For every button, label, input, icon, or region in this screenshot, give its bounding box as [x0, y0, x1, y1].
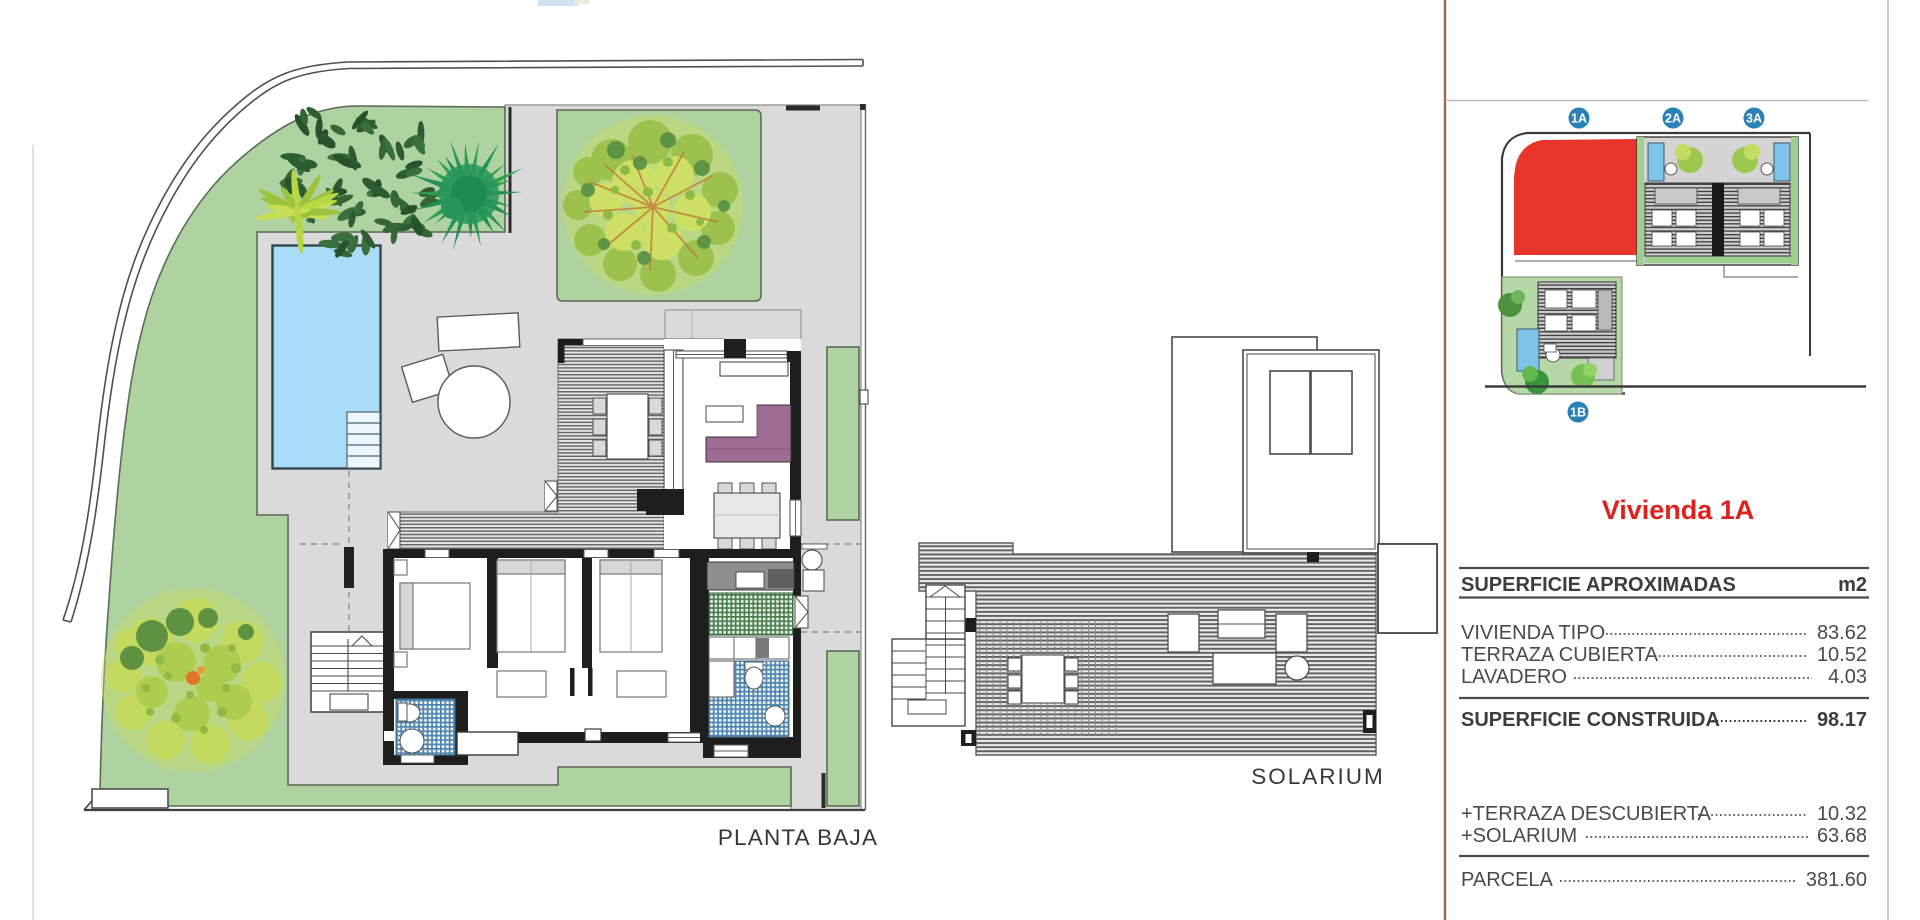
svg-text:LAVADERO: LAVADERO	[1461, 666, 1567, 688]
svg-text:SOLARIUM: SOLARIUM	[1251, 764, 1385, 789]
svg-text:1A: 1A	[1571, 112, 1587, 126]
svg-text:PARCELA: PARCELA	[1461, 869, 1554, 891]
svg-text:98.17: 98.17	[1817, 709, 1867, 731]
svg-text:2A: 2A	[1665, 112, 1681, 126]
svg-text:SUPERFICIE APROXIMADAS: SUPERFICIE APROXIMADAS	[1461, 574, 1736, 596]
svg-text:SUPERFICIE CONSTRUIDA: SUPERFICIE CONSTRUIDA	[1461, 709, 1720, 731]
svg-text:10.52: 10.52	[1817, 644, 1867, 666]
svg-text:1B: 1B	[1570, 406, 1586, 420]
svg-text:Vivienda 1A: Vivienda 1A	[1602, 495, 1755, 525]
svg-text:m2: m2	[1838, 574, 1867, 596]
svg-text:VIVIENDA TIPO: VIVIENDA TIPO	[1461, 622, 1605, 644]
svg-text:63.68: 63.68	[1817, 825, 1867, 847]
svg-text:+TERRAZA DESCUBIERTA: +TERRAZA DESCUBIERTA	[1461, 803, 1712, 825]
svg-text:4.03: 4.03	[1828, 666, 1867, 688]
svg-text:TERRAZA CUBIERTA: TERRAZA CUBIERTA	[1461, 644, 1659, 666]
svg-text:10.32: 10.32	[1817, 803, 1867, 825]
svg-text:+SOLARIUM: +SOLARIUM	[1461, 825, 1577, 847]
svg-text:381.60: 381.60	[1806, 869, 1867, 891]
svg-text:PLANTA BAJA: PLANTA BAJA	[718, 825, 878, 850]
svg-text:83.62: 83.62	[1817, 622, 1867, 644]
svg-text:3A: 3A	[1746, 112, 1762, 126]
